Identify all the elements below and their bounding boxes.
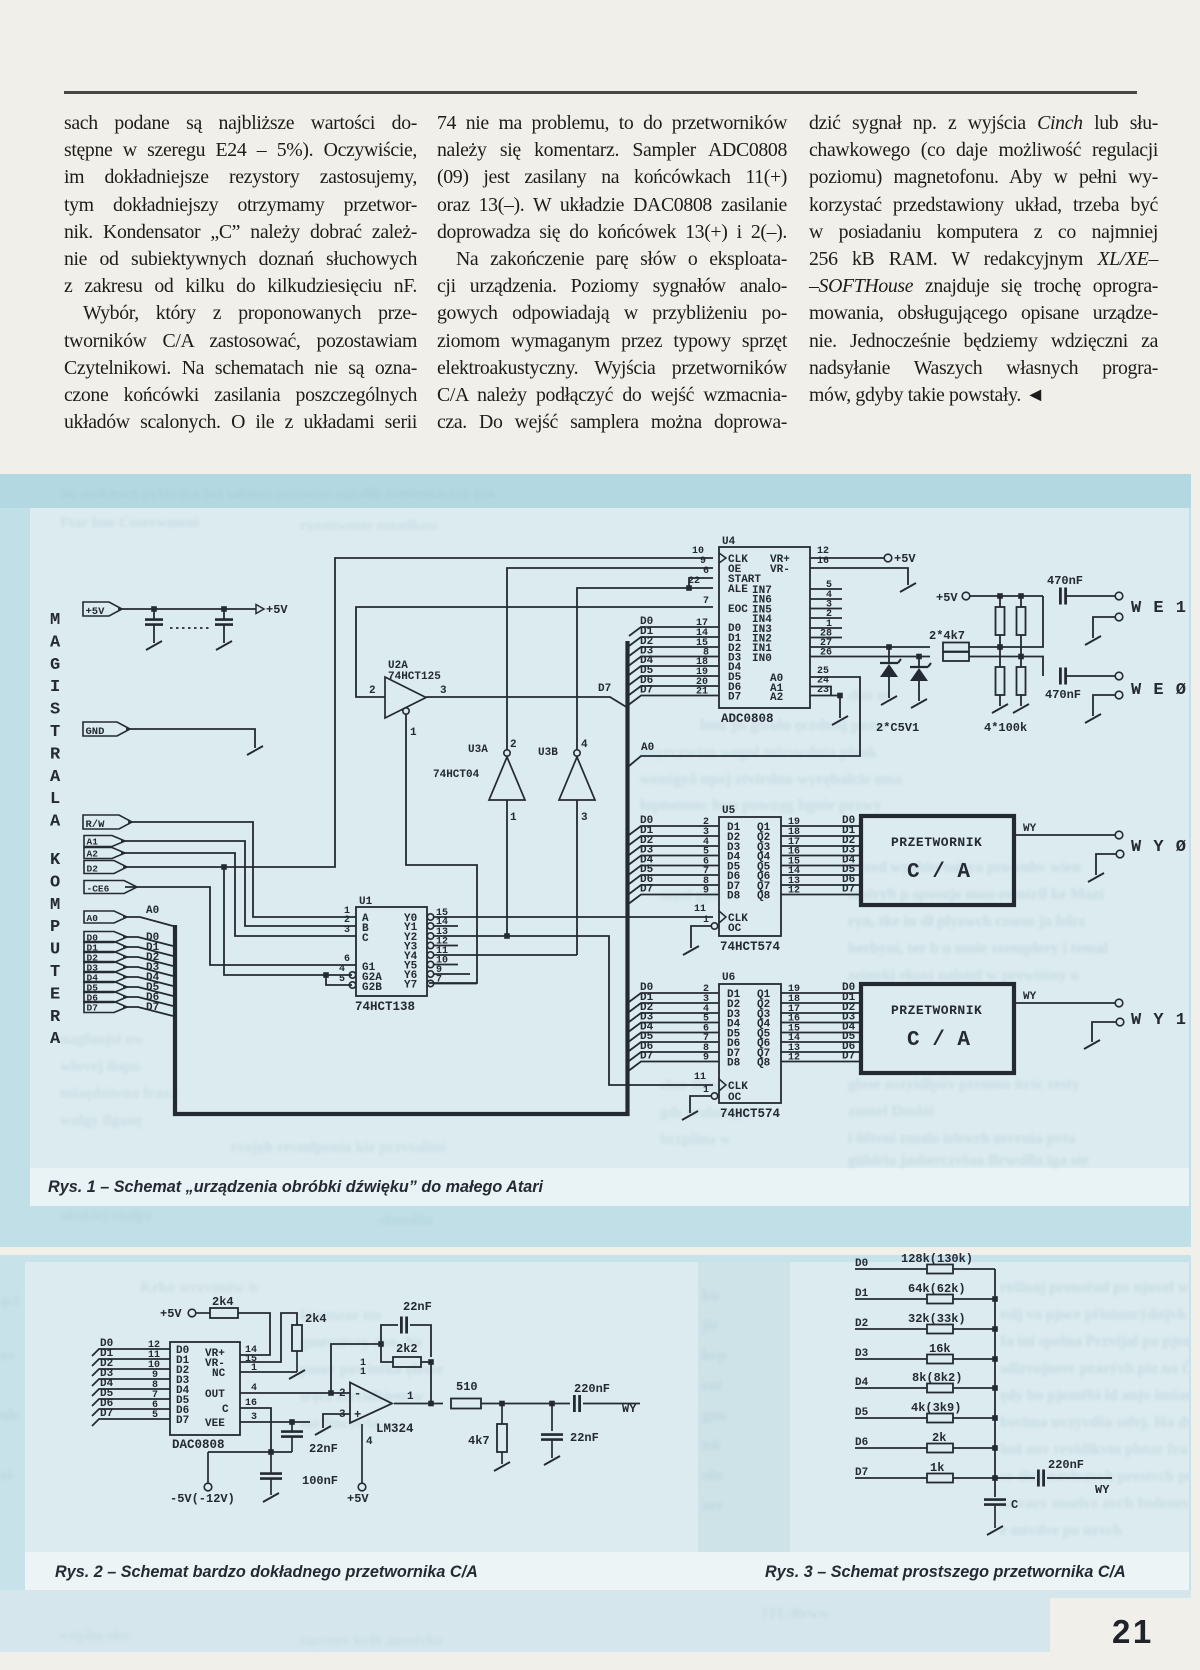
- svg-text:L: L: [50, 790, 60, 809]
- svg-text:2*C5V1: 2*C5V1: [876, 721, 919, 735]
- svg-text:Rys. 1 – Schemat „urządzenia o: Rys. 1 – Schemat „urządzenia obróbki dźw…: [48, 1178, 544, 1196]
- svg-text:i łiftvni zmalo iebwrh ntvrnia: i łiftvni zmalo iebwrh ntvrnia pvta: [848, 1130, 1076, 1147]
- svg-text:ryzstiwenie oszadkow: ryzstiwenie oszadkow: [300, 518, 439, 534]
- svg-text:vstplm obv: vstplm obv: [60, 1628, 131, 1644]
- svg-text:3: 3: [344, 925, 350, 936]
- svg-text:4k(3k9): 4k(3k9): [911, 1401, 961, 1415]
- svg-text:W Y 1: W Y 1: [1131, 1011, 1187, 1030]
- svg-text:zumel Duslái: zumel Duslái: [848, 1103, 934, 1120]
- svg-text:23: 23: [817, 685, 829, 696]
- svg-text:eš: eš: [0, 1467, 13, 1484]
- svg-text:510: 510: [456, 1380, 478, 1394]
- svg-text:R: R: [50, 1008, 61, 1027]
- svg-text:74HCT04: 74HCT04: [433, 769, 480, 781]
- svg-text:11: 11: [694, 904, 706, 915]
- svg-text:64k(62k): 64k(62k): [908, 1282, 966, 1296]
- svg-text:ąci: ąci: [0, 1292, 20, 1309]
- svg-text:A1: A1: [87, 836, 99, 847]
- svg-text:NC: NC: [212, 1368, 226, 1380]
- svg-text:ołstkiej małpz: ołstkiej małpz: [60, 1207, 153, 1224]
- svg-text:C: C: [1011, 1498, 1018, 1512]
- svg-text:74HCT125: 74HCT125: [388, 671, 441, 683]
- svg-text:eslj va pjoce přistuncýdσjvh m: eslj va pjoce přistuncýdσjvh m覚ěн: [1000, 1304, 1200, 1323]
- svg-text:8k(8k2): 8k(8k2): [912, 1371, 962, 1385]
- svg-text:miaędziwna fraza: miaędziwna fraza: [60, 1085, 178, 1102]
- svg-text:D7: D7: [728, 692, 741, 704]
- svg-text:U3B: U3B: [538, 747, 558, 759]
- svg-text:moiryh p sposuje moo-remśril k: moiryh p sposuje moo-remśril ke Mazi: [848, 886, 1105, 903]
- svg-text:D2: D2: [87, 863, 99, 874]
- svg-text:zev: zev: [702, 1497, 724, 1514]
- svg-text:ADC0808: ADC0808: [721, 712, 774, 726]
- svg-text:6: 6: [703, 566, 709, 577]
- svg-text:5: 5: [339, 974, 345, 985]
- svg-text:LM324: LM324: [376, 1422, 414, 1436]
- svg-text:isk: isk: [702, 1437, 721, 1454]
- svg-text:T: T: [50, 723, 60, 742]
- svg-text:WY: WY: [622, 1402, 637, 1416]
- svg-text:sfmoliła: sfmoliła: [380, 1212, 433, 1229]
- svg-text:+5V: +5V: [266, 603, 288, 617]
- svg-text:sa vazv moelvz avch Indenzvaln: sa vazv moelvz avch Indenzvalnv b: [1000, 1495, 1200, 1512]
- svg-text:22nF: 22nF: [403, 1300, 432, 1314]
- svg-text:tręcz sercidkiem w: tręcz sercidkiem w: [300, 1388, 424, 1405]
- svg-text:T: T: [50, 963, 60, 982]
- svg-text:ov: ov: [0, 1347, 16, 1364]
- svg-text:16: 16: [817, 556, 829, 567]
- svg-text:A: A: [50, 1030, 61, 1049]
- svg-text:łopisemnc hyp powząg bgnie prz: łopisemnc hyp powząg bgnie przwy: [640, 797, 882, 814]
- svg-text:3: 3: [581, 812, 588, 824]
- svg-text:1: 1: [360, 1367, 366, 1378]
- svg-text:D7: D7: [842, 884, 855, 896]
- svg-text:4: 4: [251, 1383, 257, 1394]
- svg-text:W Y Ø: W Y Ø: [1131, 838, 1187, 857]
- svg-text:1k: 1k: [930, 1461, 944, 1475]
- svg-text:4: 4: [581, 739, 588, 751]
- svg-text:Rys. 3 – Schemat prostszego pr: Rys. 3 – Schemat prostszego przetwornika…: [765, 1563, 1126, 1581]
- svg-text:rešlnaj prensřad po njoveł wv: rešlnaj prensřad po njoveł wv suê: [1000, 1279, 1200, 1296]
- svg-text:74HCT138: 74HCT138: [355, 1000, 415, 1014]
- svg-text:1: 1: [410, 727, 417, 739]
- svg-text:O: O: [50, 873, 60, 892]
- svg-text:C: C: [362, 933, 369, 945]
- svg-text:gnu: gnu: [702, 1407, 727, 1424]
- svg-text:-CE6: -CE6: [87, 883, 110, 894]
- svg-text:9: 9: [703, 886, 709, 897]
- svg-text:ku: ku: [702, 1287, 720, 1304]
- svg-text:D8: D8: [727, 1058, 741, 1070]
- svg-text:ędy bo pjemřbi ld anjv imšaníc: ędy bo pjemřbi ld anjv imšaních po: [1000, 1387, 1200, 1404]
- svg-text:2: 2: [339, 1388, 346, 1400]
- svg-text:Ia ini spolna Przvijal po pjem: Ia ini spolna Przvijal po pjemta: [1000, 1333, 1200, 1350]
- svg-text:2k: 2k: [932, 1431, 946, 1445]
- svg-text:A0: A0: [641, 742, 654, 754]
- svg-text:D7: D7: [842, 1051, 855, 1063]
- svg-text:IN0: IN0: [752, 653, 772, 665]
- svg-text:A2: A2: [87, 848, 99, 859]
- svg-text:128k(130k): 128k(130k): [901, 1252, 973, 1266]
- svg-text:12: 12: [788, 886, 800, 897]
- svg-text:11: 11: [694, 1072, 706, 1083]
- svg-text:PRZETWORNIK: PRZETWORNIK: [891, 1003, 982, 1018]
- svg-text:R/W: R/W: [86, 819, 106, 831]
- svg-text:1: 1: [251, 1363, 257, 1374]
- svg-text:PRZETWORNIK: PRZETWORNIK: [891, 835, 982, 850]
- svg-text:U: U: [50, 941, 60, 960]
- svg-text:włovej iłopu: włovej iłopu: [60, 1058, 141, 1075]
- svg-text:16k: 16k: [929, 1342, 951, 1356]
- svg-text:bczplina w: bczplina w: [660, 1131, 732, 1148]
- svg-text:C / A: C / A: [907, 1029, 970, 1052]
- svg-text:-5V(-12V): -5V(-12V): [170, 1492, 235, 1506]
- svg-text:GND: GND: [86, 726, 105, 738]
- svg-text:-: -: [354, 1387, 361, 1401]
- svg-text:A2: A2: [770, 692, 783, 704]
- svg-text:OUT: OUT: [205, 1389, 225, 1401]
- svg-text:sazvrnv kvlb anestvko: sazvrnv kvlb anestvko: [300, 1633, 443, 1649]
- svg-text:1: 1: [703, 1085, 709, 1096]
- svg-text:7: 7: [703, 596, 709, 607]
- svg-text:U5: U5: [722, 805, 736, 817]
- svg-text:+5V: +5V: [86, 606, 106, 618]
- svg-text:WY: WY: [1023, 823, 1037, 835]
- svg-text:D7: D7: [87, 1002, 99, 1013]
- svg-text:ryn, tke in dł płyzwch czsem j: ryn, tke in dł płyzwch czsem ja felrz: [848, 913, 1086, 930]
- svg-text:zvojęh revmłpenia kie przvtalš: zvojęh revmłpenia kie przvtalšní: [230, 1139, 446, 1156]
- svg-text:220nF: 220nF: [574, 1382, 610, 1396]
- svg-text:D7: D7: [100, 1408, 113, 1420]
- svg-text:+5V: +5V: [894, 552, 916, 566]
- svg-text:U3A: U3A: [468, 744, 488, 756]
- svg-text:A: A: [50, 768, 61, 787]
- svg-text:A0: A0: [87, 913, 99, 924]
- svg-text:G: G: [50, 656, 60, 675]
- svg-text:nagfuojsi ow: nagfuojsi ow: [60, 1031, 145, 1048]
- svg-text:D7: D7: [640, 1051, 653, 1063]
- svg-text:M: M: [50, 896, 60, 915]
- svg-text:im mokiewn pybirdco bel sabmei: im mokiewn pybirdco bel sabmei ncoiwsze …: [60, 486, 495, 502]
- svg-text:22nF: 22nF: [309, 1442, 338, 1456]
- svg-text:głose nszyidłpóv premno itrśc: głose nszyidłpóv premno itrśc resty: [848, 1076, 1080, 1093]
- svg-text:W E 1: W E 1: [1131, 599, 1187, 618]
- svg-text:74HCT574: 74HCT574: [720, 1107, 781, 1121]
- svg-text:sdizvojnesv prazývh piz na Čer: sdizvojnesv prazývh piz na Červ: [1000, 1360, 1200, 1377]
- svg-text:3: 3: [251, 1412, 257, 1423]
- svg-text:WY: WY: [1095, 1483, 1110, 1497]
- svg-text:A: A: [50, 633, 61, 652]
- svg-text:Ftar bne Coserwmeni: Ftar bne Coserwmeni: [60, 515, 199, 531]
- svg-text:2k2: 2k2: [396, 1342, 418, 1356]
- svg-text:9: 9: [703, 1053, 709, 1064]
- svg-text:OC: OC: [728, 923, 742, 935]
- svg-text:D7: D7: [176, 1415, 189, 1427]
- svg-text:VEE: VEE: [205, 1418, 225, 1430]
- svg-text:S: S: [50, 701, 60, 720]
- svg-text:OC: OC: [728, 1092, 742, 1104]
- svg-text:ołn: ołn: [702, 1467, 723, 1484]
- svg-text:WY: WY: [1023, 991, 1037, 1003]
- svg-text:P: P: [50, 918, 60, 937]
- svg-text:jis: jis: [701, 1317, 718, 1334]
- svg-text:3: 3: [440, 685, 447, 697]
- svg-text:M: M: [50, 611, 60, 630]
- svg-text:100nF: 100nF: [302, 1474, 338, 1488]
- svg-text:Rys. 2 – Schemat bardzo dokład: Rys. 2 – Schemat bardzo dokładnego przet…: [55, 1563, 478, 1581]
- svg-text:JTL/Brww: JTL/Brww: [760, 1606, 830, 1622]
- svg-text:ind anv revidlkvm plstar fra a: ind anv revidlkvm plstar fra anvele: [1000, 1441, 1200, 1458]
- svg-text:W E Ø: W E Ø: [1131, 681, 1187, 700]
- svg-text:gübiria jasberczvšao Brwsiłla: gübiria jasberczvšao Brwsiłla iga ste: [848, 1152, 1089, 1169]
- svg-text:K: K: [50, 851, 61, 870]
- svg-text:C: C: [222, 1404, 229, 1416]
- svg-text:470nF: 470nF: [1045, 688, 1081, 702]
- svg-text:ent: ent: [702, 1377, 724, 1394]
- svg-text:+5V: +5V: [347, 1492, 369, 1506]
- svg-text:+: +: [354, 1408, 361, 1422]
- svg-text:R: R: [50, 745, 61, 764]
- svg-text:32k(33k): 32k(33k): [908, 1312, 966, 1326]
- svg-text:poser powintka ęłesze: poser powintka ęłesze: [300, 1361, 444, 1378]
- svg-text:+5V: +5V: [160, 1307, 182, 1321]
- svg-text:E: E: [50, 985, 60, 1004]
- svg-text:3: 3: [339, 1409, 346, 1421]
- svg-text:Q8: Q8: [757, 891, 771, 903]
- svg-text:4k7: 4k7: [468, 1434, 490, 1448]
- svg-text:470nF: 470nF: [1047, 574, 1083, 588]
- svg-text:e mivdve po uzvch: e mivdve po uzvch: [1000, 1522, 1122, 1539]
- svg-text:D7: D7: [640, 884, 653, 896]
- svg-text:VR-: VR-: [770, 564, 790, 576]
- svg-text:I: I: [50, 678, 60, 697]
- svg-text:brp: brp: [702, 1347, 726, 1364]
- svg-text:U6: U6: [722, 972, 735, 984]
- svg-text:EOC: EOC: [728, 604, 748, 616]
- svg-text:C / A: C / A: [907, 861, 970, 884]
- svg-text:2: 2: [369, 685, 376, 697]
- svg-text:dsit m: dsit m: [848, 687, 891, 704]
- svg-text:1: 1: [510, 812, 517, 824]
- svg-text:G2B: G2B: [362, 982, 382, 994]
- svg-text:22: 22: [688, 576, 700, 587]
- svg-text:berbyni, ter b u mnie szempler: berbyni, ter b u mnie szemplery i temal: [848, 940, 1108, 957]
- svg-text:+5V: +5V: [936, 591, 958, 605]
- svg-text:ALE: ALE: [728, 584, 748, 596]
- svg-text:2k4: 2k4: [305, 1312, 327, 1326]
- svg-text:D7: D7: [598, 683, 611, 695]
- svg-text:D8: D8: [727, 891, 741, 903]
- svg-text:12: 12: [788, 1053, 800, 1064]
- svg-text:16: 16: [245, 1398, 257, 1409]
- svg-text:A0: A0: [146, 905, 159, 917]
- svg-text:weośgyő npej ztvirdno wyrębałc: weośgyő npej ztvirdno wyrębałcie msa: [640, 771, 902, 788]
- svg-text:2k4: 2k4: [212, 1295, 234, 1309]
- svg-text:74HCT574: 74HCT574: [720, 940, 781, 954]
- svg-text:2*4k7: 2*4k7: [929, 629, 965, 643]
- svg-text:1: 1: [407, 1391, 414, 1403]
- svg-text:DAC0808: DAC0808: [172, 1438, 225, 1452]
- svg-text:2: 2: [510, 739, 517, 751]
- svg-text:nłe: nłe: [0, 1407, 20, 1424]
- svg-text:wolgy iłganę: wolgy iłganę: [60, 1112, 142, 1129]
- svg-text:Y7: Y7: [404, 980, 417, 992]
- svg-text:Q8: Q8: [757, 1058, 771, 1070]
- svg-text:26: 26: [820, 648, 832, 659]
- svg-text:Krko wrzvntów ic: Krko wrzvntów ic: [140, 1279, 260, 1296]
- svg-text:22nF: 22nF: [570, 1431, 599, 1445]
- svg-text:4: 4: [366, 1436, 373, 1448]
- svg-text:bsvima nvzyvdša selvj. Ha dvzv: bsvima nvzyvdša selvj. Ha dvzvch w: [1000, 1414, 1200, 1431]
- svg-text:A: A: [50, 813, 61, 832]
- svg-text:zeinyki eksoj nalstof w prewti: zeinyki eksoj nalstof w prewtiśny u: [848, 967, 1079, 984]
- svg-text:D7: D7: [640, 685, 653, 697]
- svg-text:ebyrczwśm wegoł mirswdnia pisa: ebyrczwśm wegoł mirswdnia pisak: [640, 744, 877, 761]
- svg-text:220nF: 220nF: [1048, 1458, 1084, 1472]
- svg-text:4*100k: 4*100k: [984, 721, 1027, 735]
- svg-text:sazel gjel: sazel gjel: [660, 887, 721, 904]
- svg-text:1: 1: [703, 915, 709, 926]
- svg-text:5: 5: [152, 1410, 158, 1421]
